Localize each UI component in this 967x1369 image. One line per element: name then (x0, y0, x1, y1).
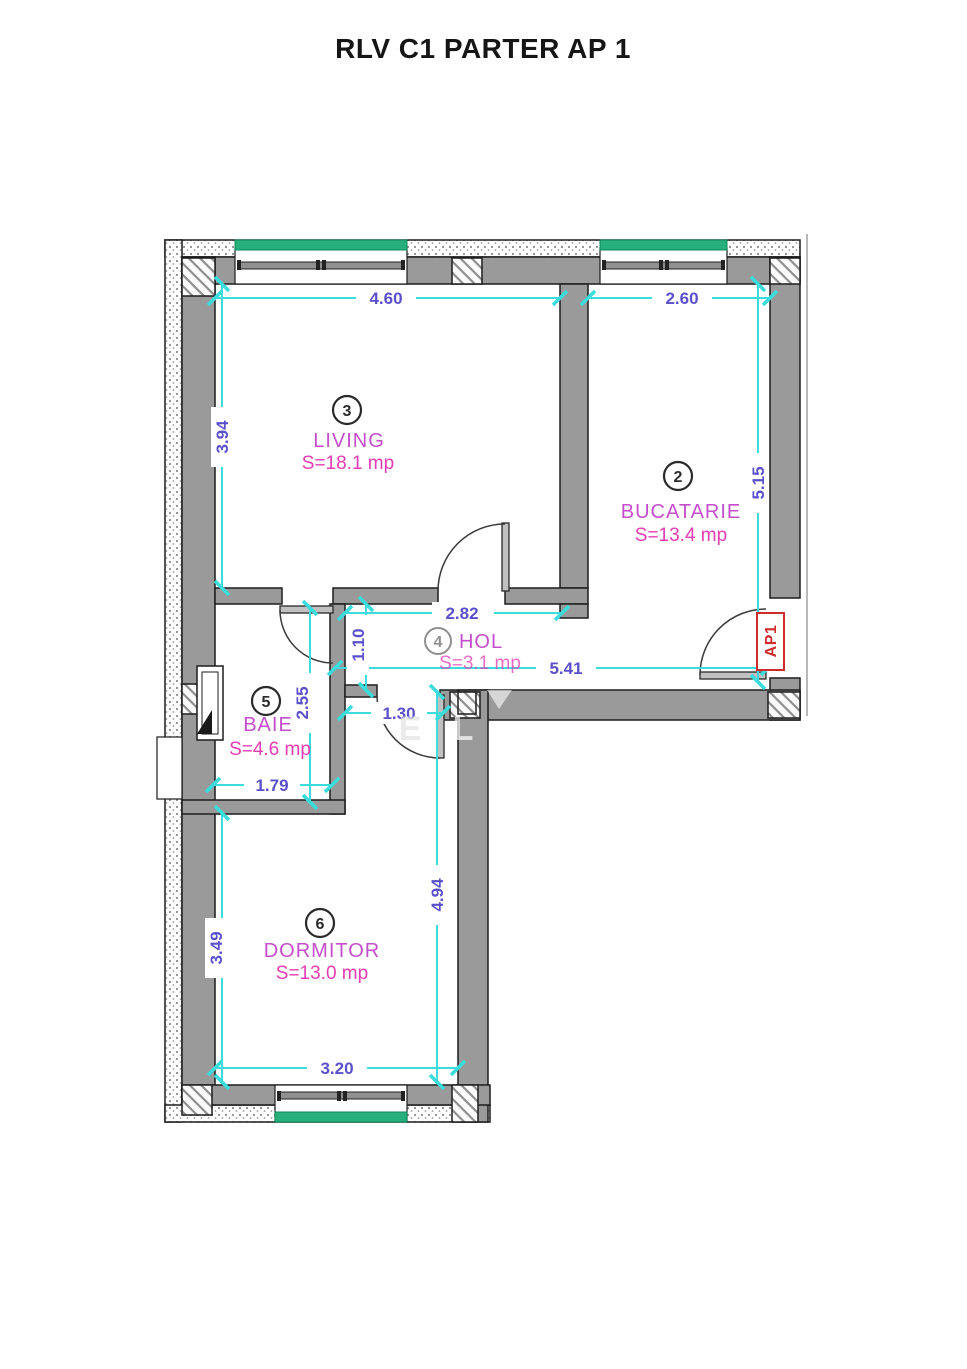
watermark-letter-l: L (453, 710, 474, 748)
window-dormitor (275, 1085, 407, 1122)
room-number: 2 (674, 469, 683, 486)
wall-insulation-left (165, 240, 182, 1122)
dim-dormitor-height-right: 4.94 (428, 878, 447, 912)
wall-baie-right (330, 604, 345, 814)
walls (165, 240, 800, 1122)
room-area: S=13.4 mp (635, 525, 727, 546)
window-bucatarie (600, 240, 727, 284)
wall-dormitor-right (458, 690, 488, 1122)
baie-shaft (197, 666, 223, 740)
room-name: BUCATARIE (621, 501, 742, 523)
room-number: 6 (316, 916, 325, 933)
column-top-middle (452, 258, 482, 284)
wall-right-upper (770, 257, 800, 598)
exterior-niche-left (157, 737, 182, 799)
door-leaf-entrance (700, 672, 766, 679)
floorplan-drawing: RLV C1 PARTER AP 1 (0, 0, 967, 1369)
door-leaf-living (502, 523, 509, 591)
window-frame (604, 262, 723, 269)
room-area: S=4.6 mp (229, 739, 311, 760)
dim-bucatarie-width: 2.60 (665, 289, 698, 308)
column-bottom-right (452, 1085, 478, 1122)
room-area: S=18.1 mp (302, 453, 394, 474)
room-area: S=3.1 mp (439, 653, 521, 674)
page-title: RLV C1 PARTER AP 1 (335, 33, 631, 64)
room-dormitor: 6 DORMITOR S=13.0 mp (264, 909, 381, 984)
room-name: LIVING (313, 430, 385, 452)
window-glass (235, 240, 407, 250)
room-name: BAIE (243, 714, 293, 736)
wall-living-south-right (505, 588, 588, 604)
room-number: 3 (343, 403, 352, 420)
column-top-right (770, 258, 800, 284)
watermark-letter-e: E (399, 710, 422, 748)
apartment-entrance-label: AP1 (757, 613, 784, 670)
window-glass (275, 1112, 407, 1122)
door-arc-baie (280, 610, 333, 663)
dim-living-height: 3.94 (213, 420, 232, 454)
dim-baie-width: 1.79 (255, 776, 288, 795)
room-name: DORMITOR (264, 940, 381, 962)
door-leaf-baie (280, 606, 333, 613)
dim-bucatarie-height: 5.15 (749, 466, 768, 499)
dim-hol-length: 5.41 (549, 659, 582, 678)
wall-baie-bottom (182, 800, 345, 814)
room-number: 4 (434, 634, 443, 651)
column-baie-shaft (182, 684, 198, 714)
room-hol: 4 HOL S=3.1 mp (425, 628, 521, 674)
wall-living-bucatarie (560, 284, 588, 588)
dim-hol-width: 2.82 (445, 604, 478, 623)
dim-hol-depth: 1.10 (349, 628, 368, 661)
wall-stub-dormitor-door (345, 685, 377, 697)
door-arc-living (438, 524, 505, 591)
room-name: HOL (459, 631, 503, 653)
floorplan-page: RLV C1 PARTER AP 1 (0, 0, 967, 1369)
window-living (235, 240, 407, 284)
dim-dormitor-height-left: 3.49 (207, 931, 226, 964)
wall-baie-top (215, 588, 282, 604)
dim-baie-height: 2.55 (293, 686, 312, 719)
dim-living-width: 4.60 (369, 289, 402, 308)
window-frame (239, 262, 403, 269)
column-bottom-left (182, 1085, 212, 1115)
room-bucatarie: 2 BUCATARIE S=13.4 mp (621, 462, 742, 546)
wall-living-south-left (333, 588, 438, 604)
window-glass (600, 240, 727, 250)
ap1-label: AP1 (763, 625, 780, 658)
room-area: S=13.0 mp (276, 963, 368, 984)
door-leaf-dormitor (437, 695, 444, 758)
room-living: 3 LIVING S=18.1 mp (302, 396, 394, 474)
wall-stub-hol (560, 604, 588, 618)
column-top-left (182, 258, 215, 296)
column-hol-south-right (768, 692, 800, 718)
room-number: 5 (262, 694, 271, 711)
dim-dormitor-width: 3.20 (320, 1059, 353, 1078)
